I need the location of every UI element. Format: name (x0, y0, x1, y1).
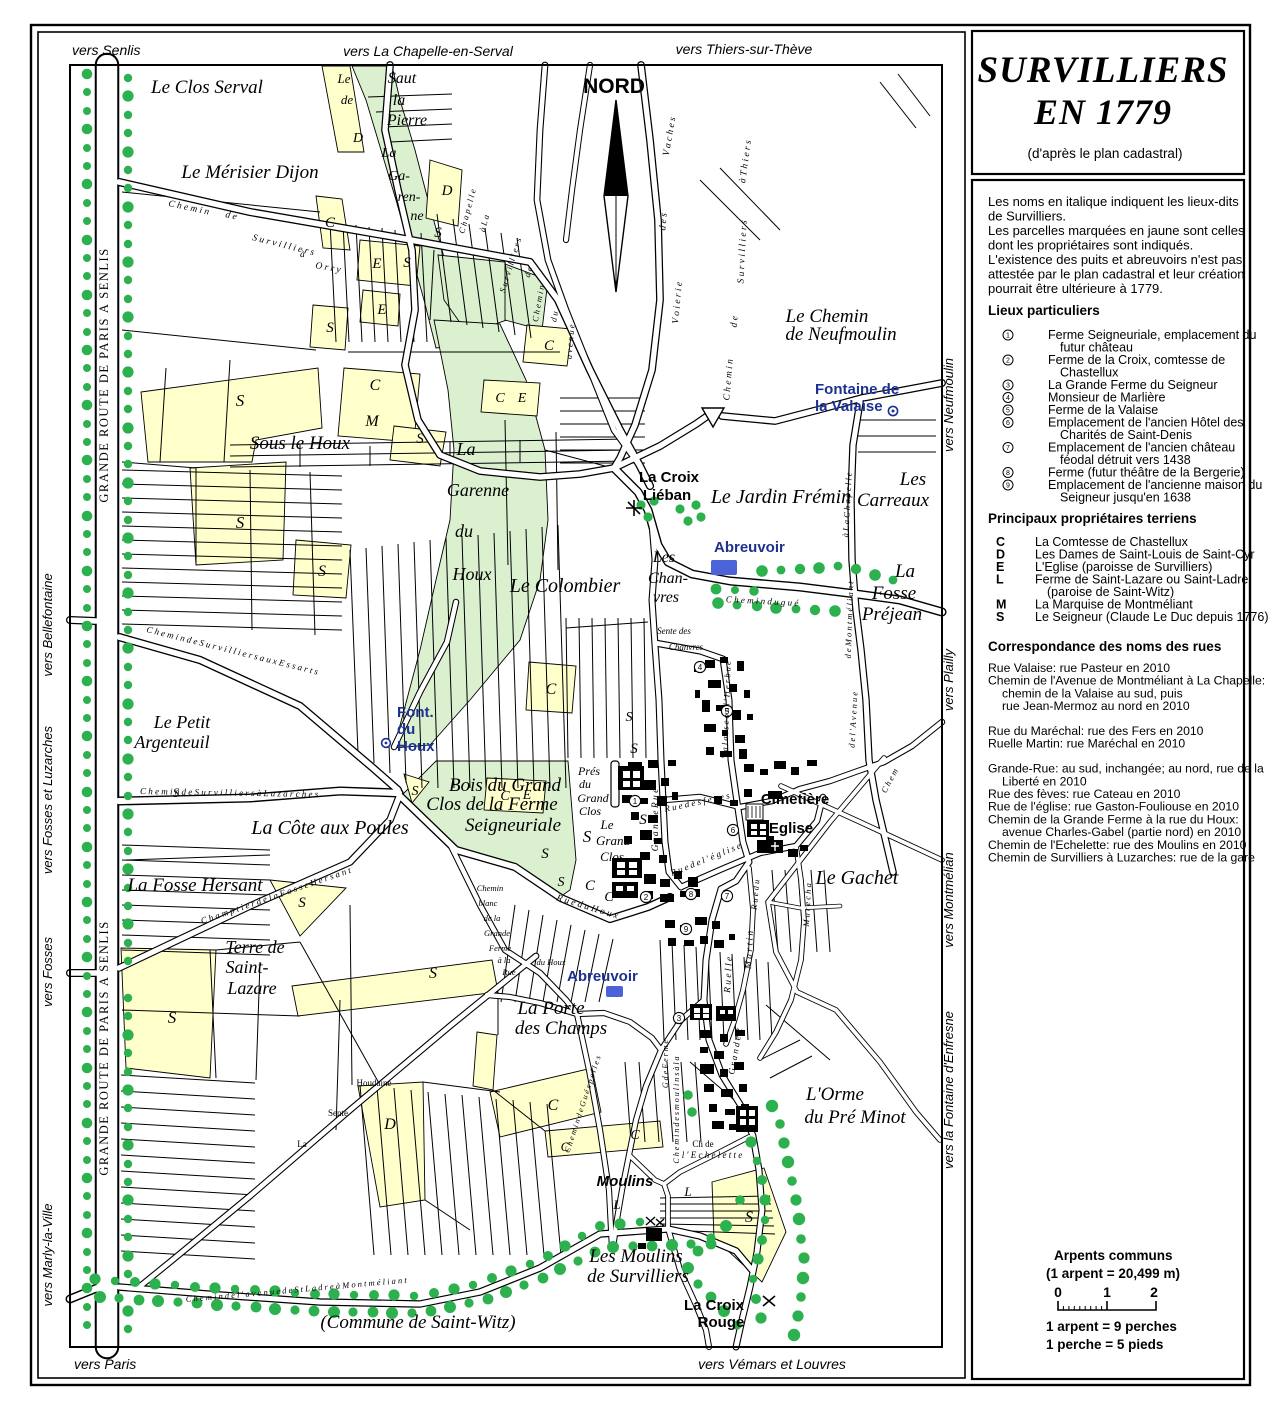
svg-text:(1 arpent = 20,499 m): (1 arpent = 20,499 m) (1046, 1266, 1180, 1281)
svg-text:La: La (894, 561, 915, 582)
svg-text:GRANDE ROUTE DE PARIS A SENLIS: GRANDE ROUTE DE PARIS A SENLIS (97, 247, 111, 502)
svg-text:Saut: Saut (388, 70, 417, 87)
svg-text:Prés: Prés (577, 764, 600, 778)
svg-text:Argenteuil: Argenteuil (133, 732, 209, 752)
svg-text:vers Fosses: vers Fosses (40, 936, 55, 1007)
svg-text:S: S (434, 225, 442, 241)
svg-text:Rouge: Rouge (698, 1314, 745, 1331)
svg-text:E: E (371, 256, 381, 272)
svg-text:NORD: NORD (583, 75, 645, 98)
svg-text:blanc: blanc (479, 898, 498, 908)
svg-text:Le Petit: Le Petit (153, 712, 211, 732)
svg-text:G r a n d e R u e: G r a n d e R u e (651, 789, 661, 852)
svg-text:Le Colombier: Le Colombier (509, 575, 621, 597)
svg-text:la: la (393, 92, 405, 109)
svg-text:rue Jean-Mermoz au nord en 201: rue Jean-Mermoz au nord en 2010 (1002, 699, 1190, 713)
svg-text:1: 1 (633, 797, 638, 806)
svg-text:1: 1 (1103, 1284, 1111, 1300)
svg-text:Sente: Sente (328, 1108, 348, 1118)
svg-text:Ruelle Martin: rue Maréchal en: Ruelle Martin: rue Maréchal en 2010 (988, 737, 1185, 751)
svg-text:D: D (441, 183, 453, 199)
svg-text:Les: Les (652, 549, 675, 566)
svg-text:C: C (495, 391, 505, 406)
svg-text:D: D (383, 1116, 396, 1133)
svg-text:La Côte aux Poules: La Côte aux Poules (250, 817, 408, 839)
svg-text:du Houx: du Houx (536, 957, 565, 967)
svg-text:S: S (630, 741, 638, 757)
svg-text:S: S (558, 875, 565, 890)
svg-text:S: S (626, 710, 633, 725)
svg-text:Chan-: Chan- (648, 570, 688, 587)
svg-text:S: S (996, 610, 1004, 624)
svg-text:Rue: Rue (501, 967, 515, 977)
svg-text:8: 8 (1006, 470, 1010, 477)
svg-text:SURVILLIERS: SURVILLIERS (978, 50, 1229, 91)
svg-text:de Survilliers.: de Survilliers. (988, 209, 1066, 224)
svg-text:vers Paris: vers Paris (74, 1356, 136, 1372)
svg-text:ren-: ren- (398, 190, 421, 205)
svg-text:Cimetière: Cimetière (761, 791, 829, 808)
svg-text:à la: à la (498, 955, 511, 965)
svg-text:de Neufmoulin: de Neufmoulin (785, 324, 896, 345)
svg-text:C: C (548, 1097, 559, 1114)
svg-text:7: 7 (1006, 445, 1010, 452)
svg-text:Arpents communs: Arpents communs (1054, 1248, 1173, 1263)
svg-text:l ' E c h e l e t t e: l ' E c h e l e t t e (682, 1150, 742, 1160)
svg-text:S: S (326, 320, 334, 336)
svg-text:5: 5 (1006, 408, 1010, 415)
svg-text:7: 7 (725, 892, 730, 901)
svg-text:GRANDE ROUTE DE PARIS A SENLIS: GRANDE ROUTE DE PARIS A SENLIS (97, 920, 111, 1175)
svg-text:2: 2 (644, 893, 649, 902)
svg-text:La: La (381, 146, 397, 161)
svg-text:Carreaux: Carreaux (857, 490, 930, 511)
svg-text:d e s: d e s (658, 212, 670, 231)
svg-text:Abreuvoir: Abreuvoir (714, 539, 785, 556)
svg-text:Chanvres: Chanvres (669, 642, 704, 652)
svg-text:Clos: Clos (600, 849, 624, 864)
svg-text:Chemin: Chemin (477, 883, 503, 893)
svg-text:G d e F e r m e: G d e F e r m e (661, 1039, 670, 1088)
svg-text:3: 3 (1006, 383, 1010, 390)
svg-text:S: S (416, 431, 424, 447)
svg-text:vers Montmélian: vers Montmélian (941, 852, 956, 947)
svg-text:Préjean: Préjean (861, 604, 922, 625)
svg-text:Correspondance des noms des ru: Correspondance des noms des rues (988, 639, 1221, 654)
svg-text:La Croix: La Croix (639, 469, 700, 486)
svg-text:1 arpent = 9 perches: 1 arpent = 9 perches (1046, 1319, 1177, 1334)
svg-text:S: S (403, 255, 411, 271)
svg-text:C: C (325, 215, 336, 231)
svg-text:de: de (341, 92, 354, 107)
svg-text:du: du (579, 777, 591, 791)
svg-text:3: 3 (677, 1014, 682, 1023)
svg-text:Houx: Houx (397, 738, 435, 755)
svg-text:vers Marly-la-Ville: vers Marly-la-Ville (40, 1203, 55, 1306)
svg-text:C: C (544, 338, 555, 354)
svg-text:1 perche = 5 pieds: 1 perche = 5 pieds (1046, 1337, 1163, 1352)
svg-text:S: S (541, 846, 549, 862)
svg-text:S: S (168, 1008, 177, 1027)
svg-text:La Croix: La Croix (684, 1297, 745, 1314)
svg-text:2: 2 (1150, 1284, 1158, 1300)
svg-text:L'Orme: L'Orme (805, 1084, 864, 1105)
svg-text:1: 1 (1006, 333, 1010, 340)
svg-text:S: S (236, 513, 245, 532)
svg-text:Lazare: Lazare (226, 978, 276, 998)
svg-text:La Porte: La Porte (516, 998, 584, 1019)
svg-text:Clos: Clos (579, 804, 601, 818)
svg-text:Seigneur jusqu'en 1638: Seigneur jusqu'en 1638 (1060, 491, 1191, 505)
svg-text:S: S (236, 391, 245, 410)
svg-text:9: 9 (684, 925, 689, 934)
svg-text:Le: Le (337, 71, 351, 86)
svg-text:Le: Le (600, 817, 614, 832)
svg-text:C: C (604, 890, 614, 905)
svg-text:Les: Les (899, 469, 926, 490)
svg-text:8: 8 (689, 890, 694, 899)
svg-text:vres: vres (653, 589, 679, 606)
svg-text:Font.: Font. (397, 704, 434, 721)
svg-text:vers La Chapelle-en-Serval: vers La Chapelle-en-Serval (343, 43, 514, 59)
svg-text:Lieux particuliers: Lieux particuliers (988, 303, 1100, 318)
svg-text:de Survilliers: de Survilliers (587, 1266, 689, 1287)
svg-text:Eglise: Eglise (769, 820, 813, 837)
svg-text:attestée par le plan cadastral: attestée par le plan cadastral et leur c… (988, 267, 1245, 282)
svg-text:Ferme: Ferme (488, 943, 511, 953)
svg-text:M: M (364, 413, 380, 430)
svg-text:Principaux propriétaires terri: Principaux propriétaires terriens (988, 511, 1197, 526)
svg-text:Ch de: Ch de (692, 1139, 713, 1149)
svg-text:Moulins: Moulins (597, 1173, 654, 1190)
svg-text:S: S (583, 827, 592, 846)
svg-text:Fosse: Fosse (871, 583, 916, 604)
svg-text:S: S (298, 895, 306, 911)
svg-text:L'existence des puits et abreu: L'existence des puits et abreuvoirs n'es… (988, 252, 1243, 267)
svg-text:4: 4 (1006, 395, 1010, 402)
svg-text:S: S (639, 812, 647, 828)
svg-text:ne: ne (410, 209, 423, 224)
svg-text:Terre de: Terre de (225, 937, 284, 957)
svg-text:Sous le Houx: Sous le Houx (250, 433, 351, 454)
svg-text:vers Plailly: vers Plailly (941, 647, 956, 711)
svg-text:du Pré Minot: du Pré Minot (804, 1107, 906, 1128)
svg-text:L: L (996, 573, 1004, 587)
svg-text:vers Bellefontaine: vers Bellefontaine (40, 573, 55, 676)
svg-text:Abreuvoir: Abreuvoir (567, 968, 638, 985)
svg-text:L: L (612, 1197, 620, 1212)
svg-text:Saint-: Saint- (226, 957, 269, 977)
svg-text:Garenne: Garenne (447, 480, 509, 500)
svg-text:La: La (455, 439, 475, 459)
svg-text:(Commune de Saint-Witz): (Commune de Saint-Witz) (320, 1312, 515, 1333)
svg-text:vers Vémars et Louvres: vers Vémars et Louvres (698, 1356, 846, 1372)
svg-text:S: S (745, 1209, 753, 1226)
svg-text:9: 9 (1006, 483, 1010, 490)
svg-text:Les parcelles marquées en jaun: Les parcelles marquées en jaune sont cel… (988, 223, 1245, 238)
svg-text:Pierre: Pierre (386, 112, 427, 129)
svg-text:du: du (397, 721, 415, 738)
svg-text:la Valaise: la Valaise (815, 398, 883, 415)
svg-text:C: C (370, 377, 381, 394)
svg-text:Grande: Grande (484, 928, 510, 938)
svg-text:à: à (300, 250, 305, 260)
svg-text:E: E (522, 788, 532, 803)
svg-text:Fontaine de: Fontaine de (815, 381, 899, 398)
svg-text:Le Clos Serval: Le Clos Serval (150, 77, 263, 98)
svg-text:C: C (546, 681, 557, 698)
svg-text:4: 4 (698, 663, 703, 672)
svg-text:Seigneuriale: Seigneuriale (465, 815, 561, 836)
svg-text:d u: d u (548, 310, 560, 322)
svg-text:vers la Fontaine d'Enfresne: vers la Fontaine d'Enfresne (941, 1011, 956, 1169)
svg-text:EN 1779: EN 1779 (1033, 92, 1172, 132)
svg-text:Liéban: Liéban (643, 487, 691, 504)
svg-text:vers Thiers-sur-Thève: vers Thiers-sur-Thève (676, 41, 813, 57)
svg-text:vers Senlis: vers Senlis (72, 42, 140, 58)
svg-text:des Champs: des Champs (515, 1018, 607, 1039)
svg-text:S: S (412, 784, 419, 799)
svg-text:0: 0 (1054, 1284, 1062, 1300)
svg-text:Le Gachet: Le Gachet (815, 867, 899, 889)
svg-text:d e: d e (730, 316, 741, 328)
svg-text:D: D (352, 131, 363, 146)
svg-text:(d'après le plan cadastral): (d'après le plan cadastral) (1028, 146, 1183, 161)
svg-text:S: S (429, 965, 437, 982)
svg-text:Le Mérisier Dijon: Le Mérisier Dijon (180, 162, 318, 183)
svg-text:de la: de la (484, 913, 501, 923)
svg-text:Le Seigneur (Claude Le Duc dep: Le Seigneur (Claude Le Duc depuis 1776) (1035, 610, 1269, 624)
svg-text:Houx: Houx (452, 564, 492, 584)
svg-text:6: 6 (731, 826, 736, 835)
svg-text:C: C (585, 878, 596, 894)
svg-text:E: E (517, 391, 527, 406)
svg-text:Houdaine: Houdaine (357, 1078, 392, 1088)
svg-text:du: du (455, 521, 473, 541)
svg-text:S: S (318, 563, 326, 580)
svg-text:vers Fosses et Luzarches: vers Fosses et Luzarches (40, 725, 55, 874)
svg-text:pourrait être ultérieure à 177: pourrait être ultérieure à 1779. (988, 281, 1163, 296)
svg-text:M a r t i n: M a r t i n (744, 930, 756, 970)
svg-text:E: E (376, 302, 386, 318)
svg-text:C: C (630, 1128, 640, 1143)
svg-text:Le Jardin Frémin: Le Jardin Frémin (710, 486, 851, 508)
svg-text:vers Neufmoulin: vers Neufmoulin (941, 358, 956, 452)
svg-text:Chemin de Survilliers à Luzarc: Chemin de Survilliers à Luzarches: rue d… (988, 851, 1255, 865)
svg-text:Sente des: Sente des (657, 626, 691, 636)
svg-text:Clos de la Ferme: Clos de la Ferme (426, 794, 557, 815)
svg-text:Ga-: Ga- (388, 169, 410, 184)
svg-text:6: 6 (1006, 420, 1010, 427)
svg-text:La: La (297, 1139, 307, 1149)
svg-text:Grand: Grand (577, 791, 609, 805)
svg-text:Les noms en italique indiquent: Les noms en italique indiquent les lieux… (988, 194, 1239, 209)
svg-text:C h e m i n d e s m o u l i: C h e m i n d e s m o u l i n s à l a (672, 1056, 681, 1163)
svg-text:R u e l l e: R u e l l e (723, 957, 735, 995)
svg-text:L: L (683, 1184, 691, 1199)
svg-text:dont les propriétaires sont in: dont les propriétaires sont indiqués. (988, 238, 1193, 253)
svg-text:La Fosse Hersant: La Fosse Hersant (126, 875, 263, 896)
svg-text:Les Moulins: Les Moulins (588, 1246, 682, 1267)
svg-text:Grand: Grand (596, 833, 630, 848)
svg-text:C: C (500, 789, 510, 804)
svg-text:2: 2 (1006, 358, 1010, 365)
